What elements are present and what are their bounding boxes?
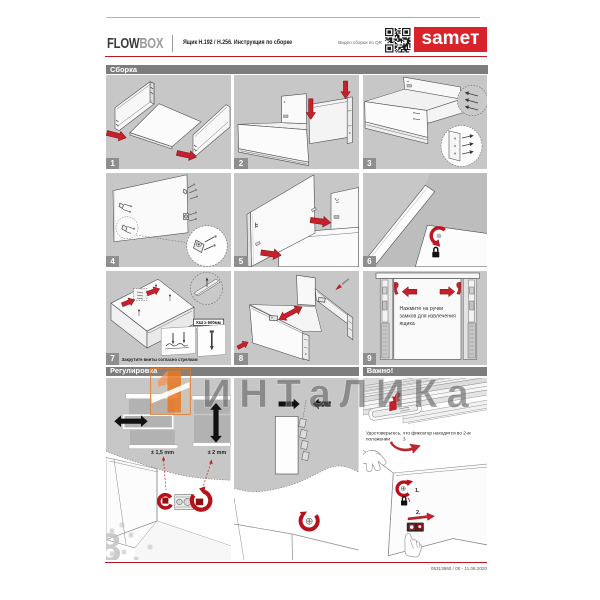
svg-text:3: 3 [403, 437, 406, 442]
svg-text:1.: 1. [415, 488, 420, 494]
svg-text:КШ ≥ 600мм: КШ ≥ 600мм [196, 320, 221, 325]
svg-text:замков для извлечения: замков для извлечения [399, 313, 456, 319]
svg-text:Удостоверьтесь, что фиксатор н: Удостоверьтесь, что фиксатор находится в… [366, 431, 471, 436]
svg-text:8: 8 [106, 526, 121, 560]
svg-text:± 2 mm: ± 2 mm [208, 450, 227, 456]
svg-text:положении: положении [366, 437, 390, 442]
svg-text:ящика: ящика [399, 321, 414, 327]
svg-text:± 1,5 mm: ± 1,5 mm [151, 450, 174, 456]
svg-text:2.: 2. [416, 510, 421, 516]
svg-text:Нажмите на ручки: Нажмите на ручки [399, 306, 443, 312]
